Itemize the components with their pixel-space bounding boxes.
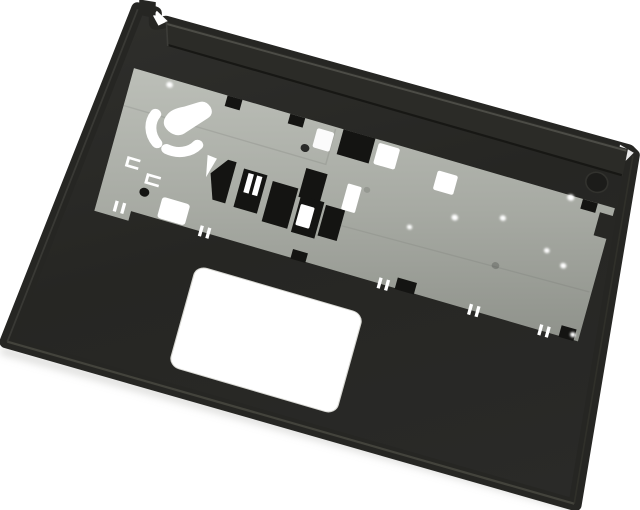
product-photo: Product photo of a black laptop palmrest… bbox=[0, 0, 640, 510]
photo-canvas: Product photo of a black laptop palmrest… bbox=[0, 0, 640, 510]
